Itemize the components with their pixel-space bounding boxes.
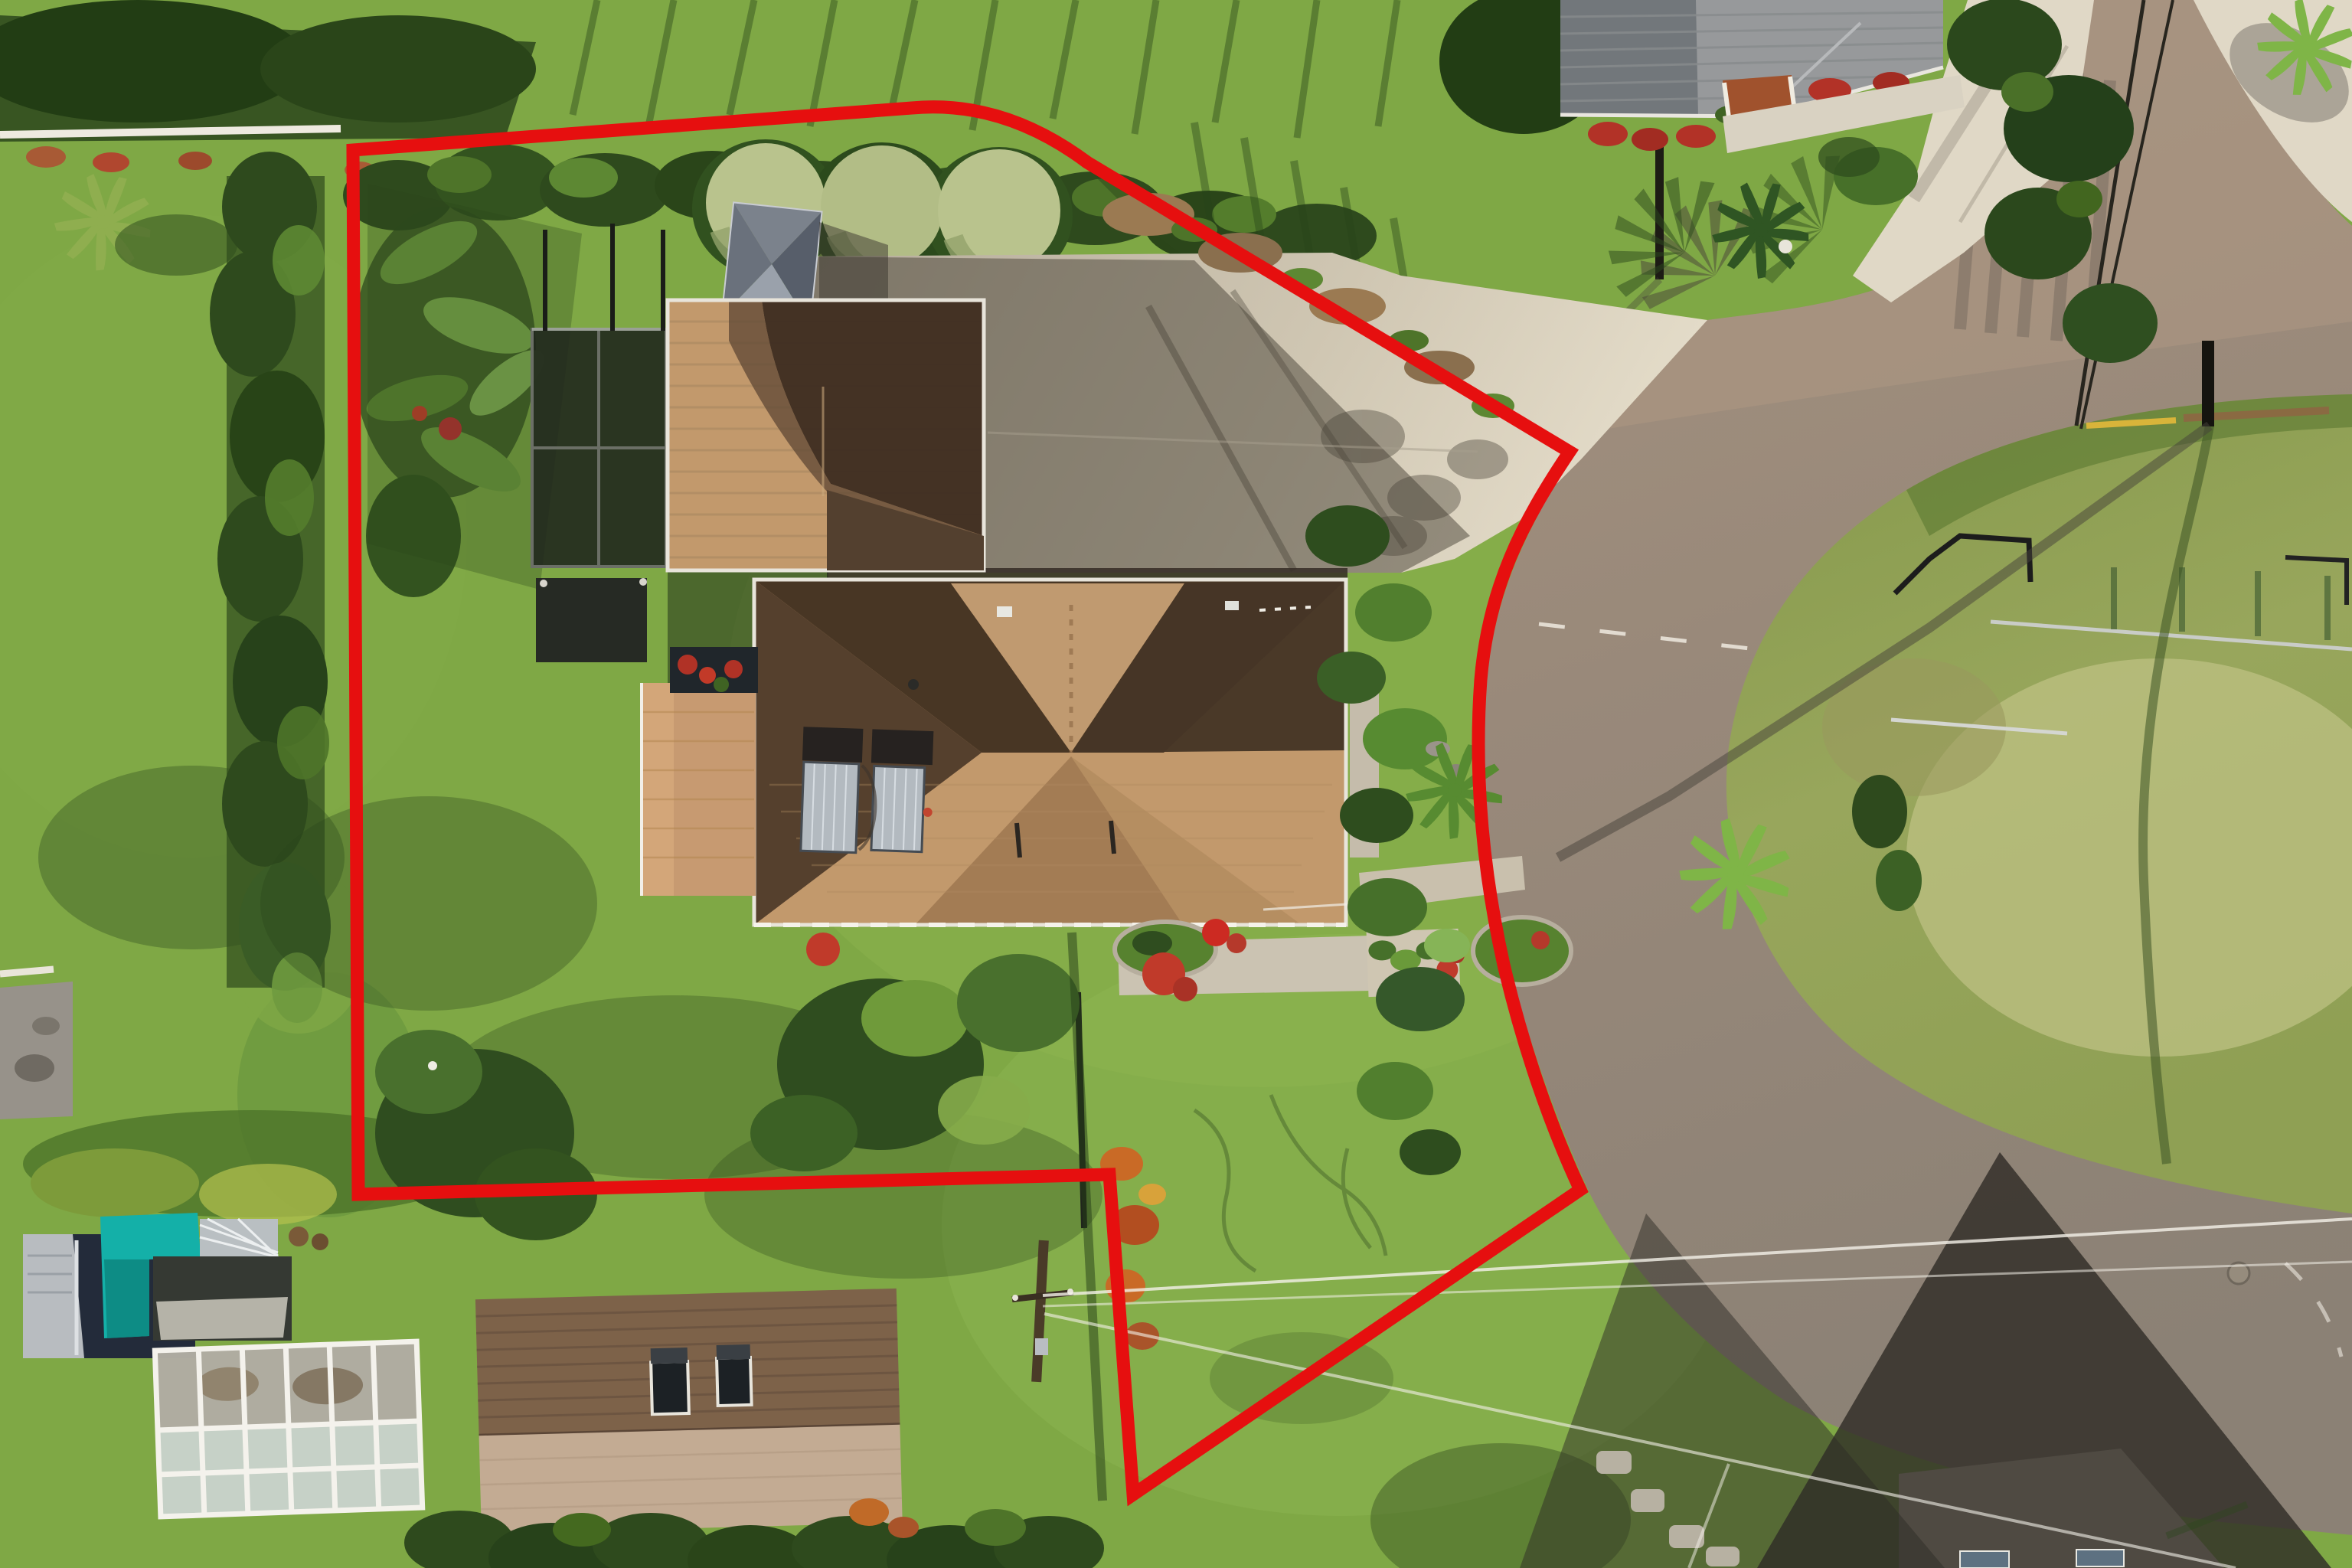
solar-panel-neighbor — [2076, 1550, 2124, 1566]
variegated-shrub-band — [31, 1148, 199, 1217]
aerial-photo-canvas — [0, 0, 2352, 1568]
round-planter — [1473, 917, 1571, 985]
solar-panel — [801, 762, 859, 852]
wood-deck — [642, 683, 756, 896]
white-fence — [0, 969, 54, 974]
stone-pad — [0, 982, 73, 1119]
boulder — [32, 1017, 60, 1035]
potting-table-top — [156, 1297, 288, 1340]
sprinkler-head — [428, 1061, 437, 1070]
tree-canopy — [260, 15, 536, 122]
variegated-shrub-band — [199, 1164, 337, 1225]
greenhouse — [155, 1341, 422, 1517]
boulder — [15, 1054, 54, 1082]
wheel — [289, 1227, 309, 1246]
ohana-building — [475, 1289, 903, 1534]
red-flowers — [1202, 919, 1230, 946]
red-flowers — [1227, 933, 1246, 953]
vent-pipe — [1111, 821, 1114, 854]
garden-beds — [536, 578, 647, 662]
palm-shadow — [115, 214, 237, 276]
skylight-window — [717, 1357, 752, 1406]
red-bush — [806, 933, 840, 966]
orange-croton — [849, 1498, 889, 1526]
orange-croton — [888, 1517, 919, 1538]
solar-panel-neighbor — [1960, 1551, 2009, 1568]
red-ti-plant — [1531, 931, 1550, 949]
transformer — [1035, 1338, 1048, 1355]
wheel — [312, 1233, 328, 1250]
red-plant — [678, 655, 697, 675]
aerial-photo — [0, 0, 2352, 1568]
skylight-window — [651, 1361, 689, 1414]
field-shrub — [1876, 850, 1922, 911]
vent-pipe — [1017, 823, 1020, 857]
roof-vent — [908, 679, 919, 690]
shrub-shadow — [1818, 137, 1880, 177]
red-plant — [699, 667, 716, 684]
teal-tarp-fold — [104, 1259, 149, 1338]
skylight — [997, 606, 1012, 617]
utility-pole — [2202, 341, 2214, 426]
field-shrub — [1852, 775, 1907, 848]
white-globe — [1779, 240, 1792, 253]
skylight — [1225, 601, 1239, 610]
shaded-patio — [670, 647, 758, 693]
red-plant — [724, 660, 743, 678]
